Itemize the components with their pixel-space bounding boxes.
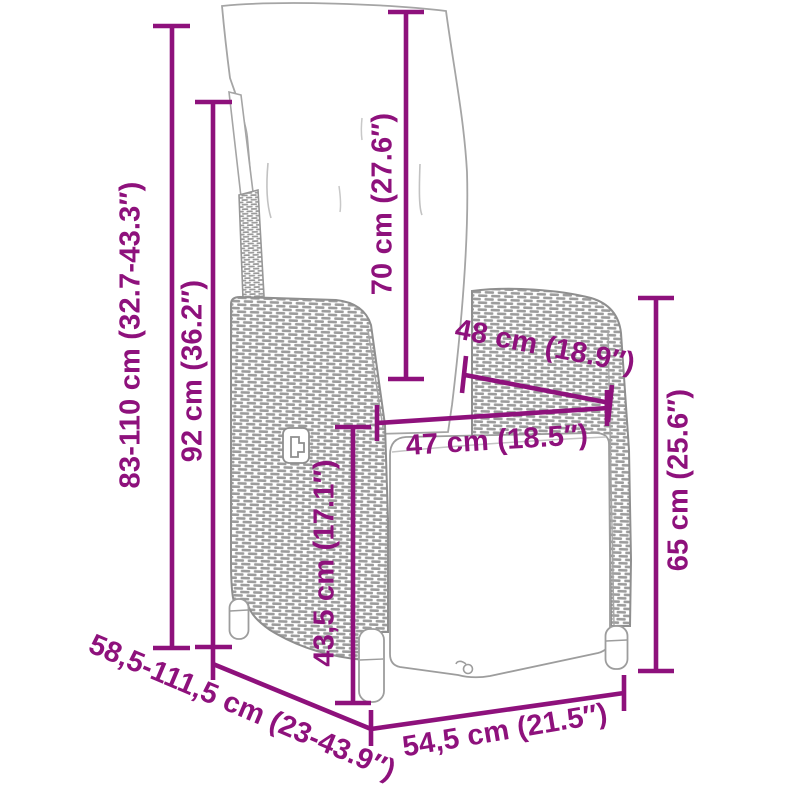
recline-handle [283,428,309,463]
front-right-leg-cap [606,626,628,669]
seat-cushion [390,433,610,677]
dim-label-back-height: 83-110 cm (32.7-43.3″) [115,182,148,489]
dim-label-armrest-height: 65 cm (25.6″) [663,389,696,572]
product-dimension-diagram: 83-110 cm (32.7-43.3″) 92 cm (36.2″) 70 … [0,0,800,800]
front-left-leg-cap [359,629,384,702]
dim-label-seat-height: 43,5 cm (17.1″) [309,459,342,666]
dim-label-backrest-length: 70 cm (27.6″) [367,113,400,296]
back-left-leg-cap [230,599,249,639]
dim-label-total-height: 92 cm (36.2″) [177,280,210,463]
